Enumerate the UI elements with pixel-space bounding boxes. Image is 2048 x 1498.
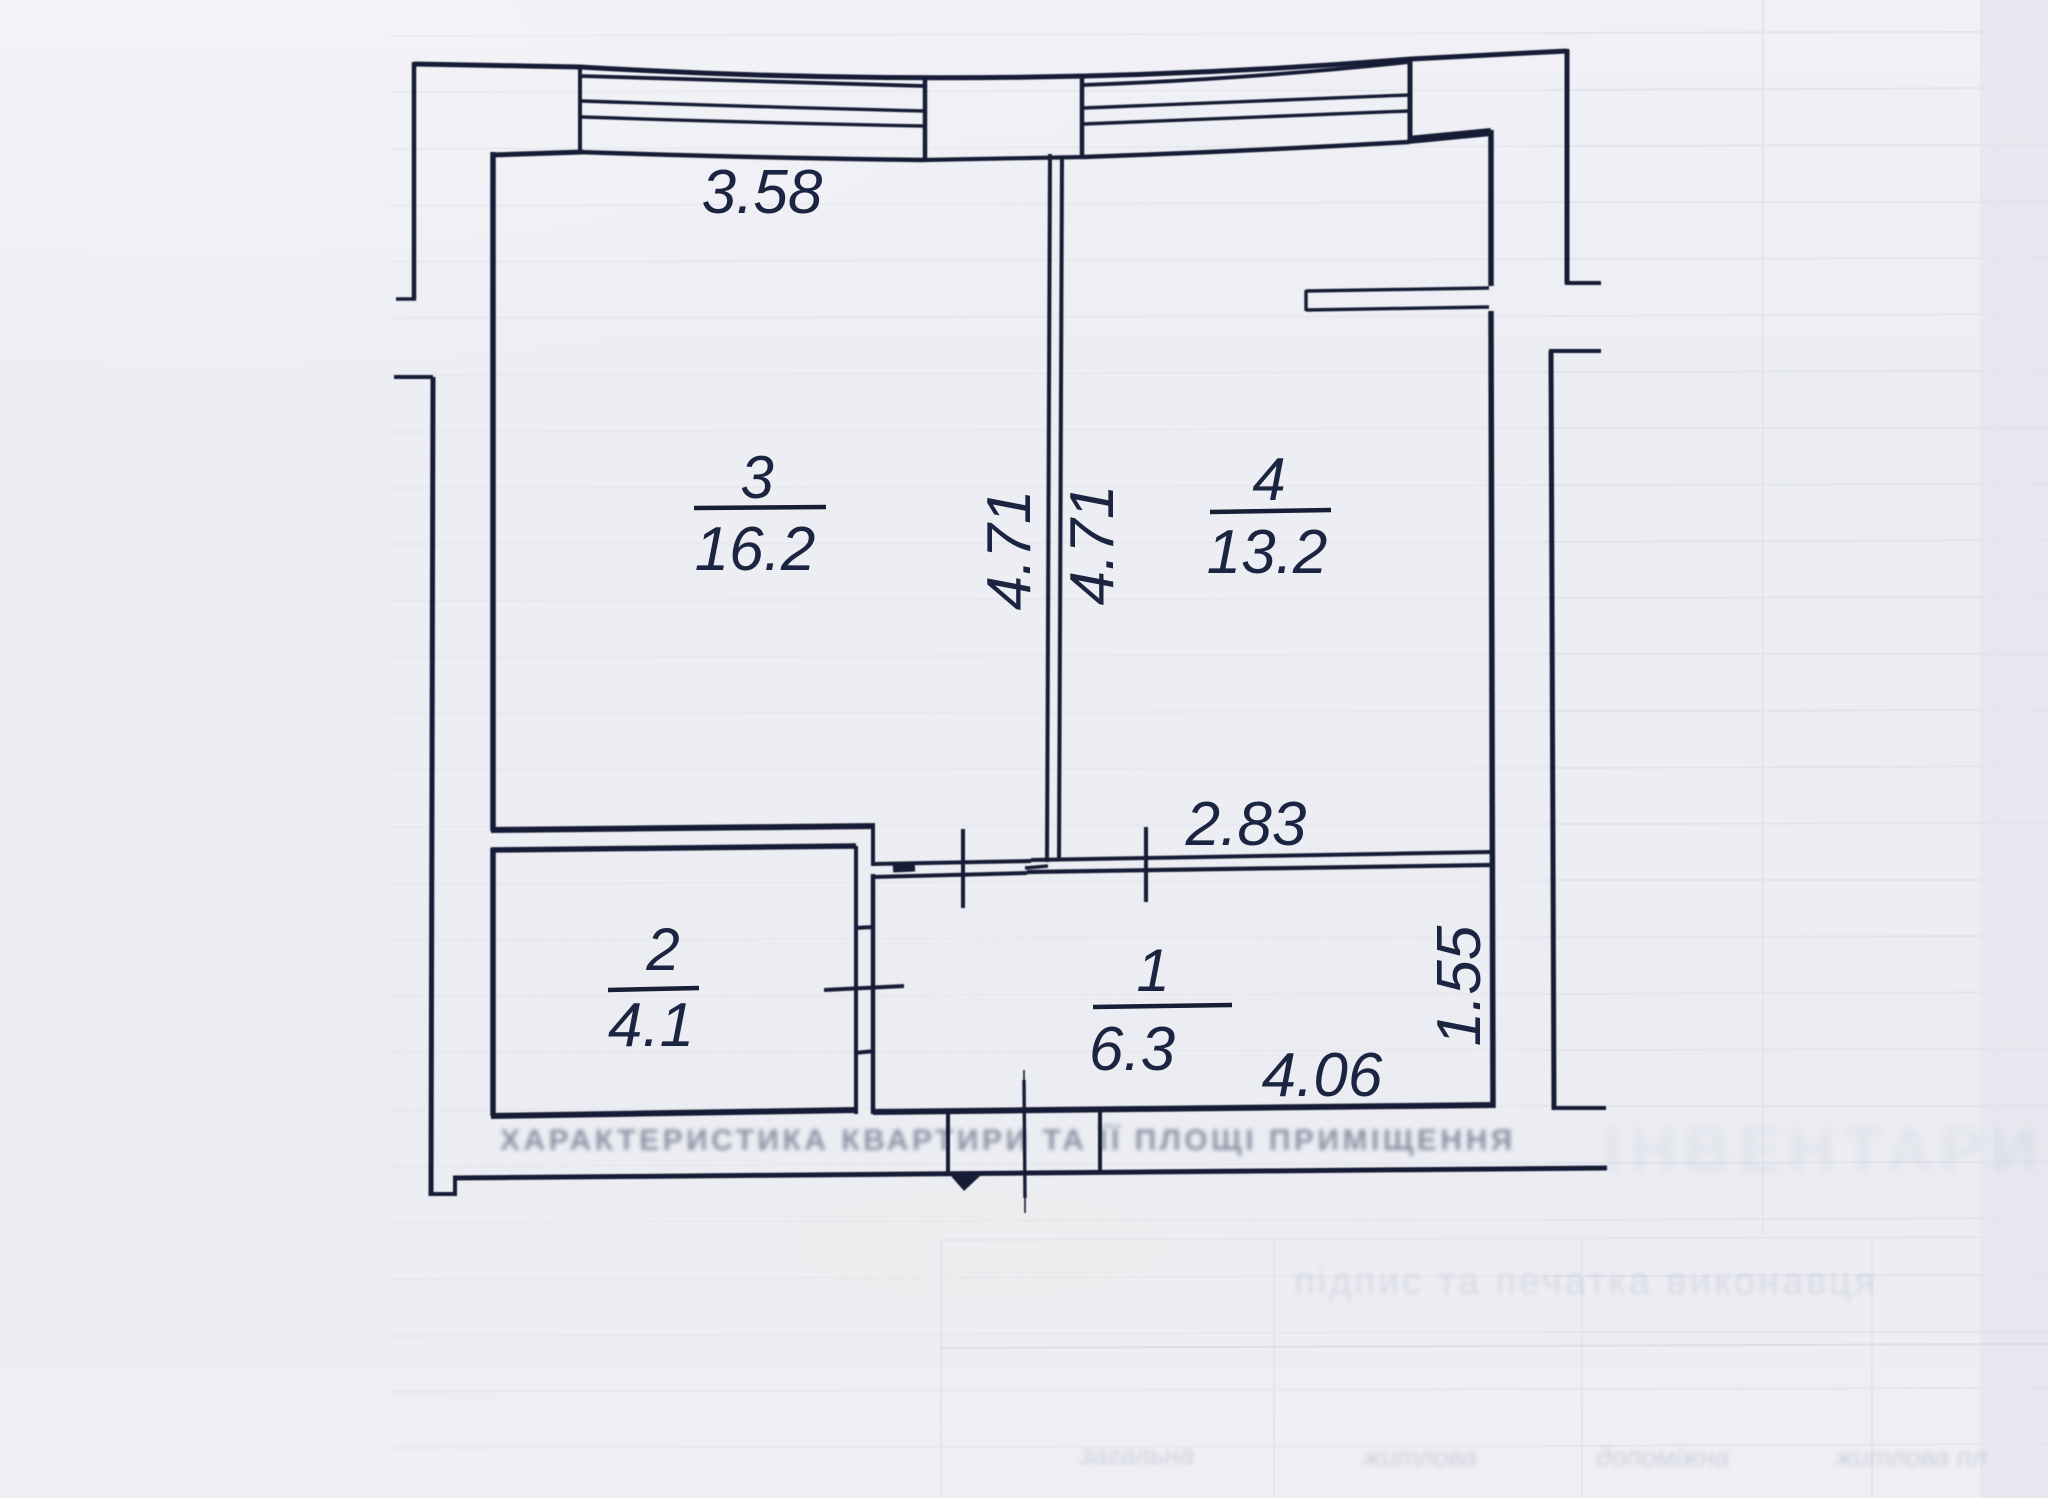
svg-text:13.2: 13.2 [1207,518,1328,587]
svg-text:2: 2 [645,916,679,983]
svg-text:ХАРАКТЕРИСТИКА КВАРТИРИ ТА ЇЇ: ХАРАКТЕРИСТИКА КВАРТИРИ ТА ЇЇ ПЛОЩІ ПРИМ… [500,1124,1516,1157]
svg-text:загальна: загальна [1079,1440,1194,1470]
svg-text:1.55: 1.55 [1425,925,1494,1046]
svg-text:4.1: 4.1 [608,991,694,1060]
svg-text:ІНВЕНТАРИЗА: ІНВЕНТАРИЗА [1604,1114,2048,1186]
svg-text:16.2: 16.2 [695,515,816,584]
svg-text:4.71: 4.71 [975,490,1044,611]
svg-text:житлова: житлова [1362,1442,1477,1472]
svg-text:2.83: 2.83 [1185,790,1307,859]
svg-text:1: 1 [1136,937,1169,1004]
svg-text:4: 4 [1252,446,1285,513]
svg-text:житлова пл: житлова пл [1834,1442,1987,1472]
svg-text:4.06: 4.06 [1262,1041,1383,1110]
svg-text:4.71: 4.71 [1058,485,1127,606]
svg-text:3.58: 3.58 [702,158,823,227]
svg-text:допоміжна: допоміжна [1597,1442,1730,1472]
svg-text:підпис та печатка виконавця: підпис та печатка виконавця [1294,1261,1878,1303]
svg-text:6.3: 6.3 [1089,1015,1175,1084]
svg-text:3: 3 [740,444,773,511]
